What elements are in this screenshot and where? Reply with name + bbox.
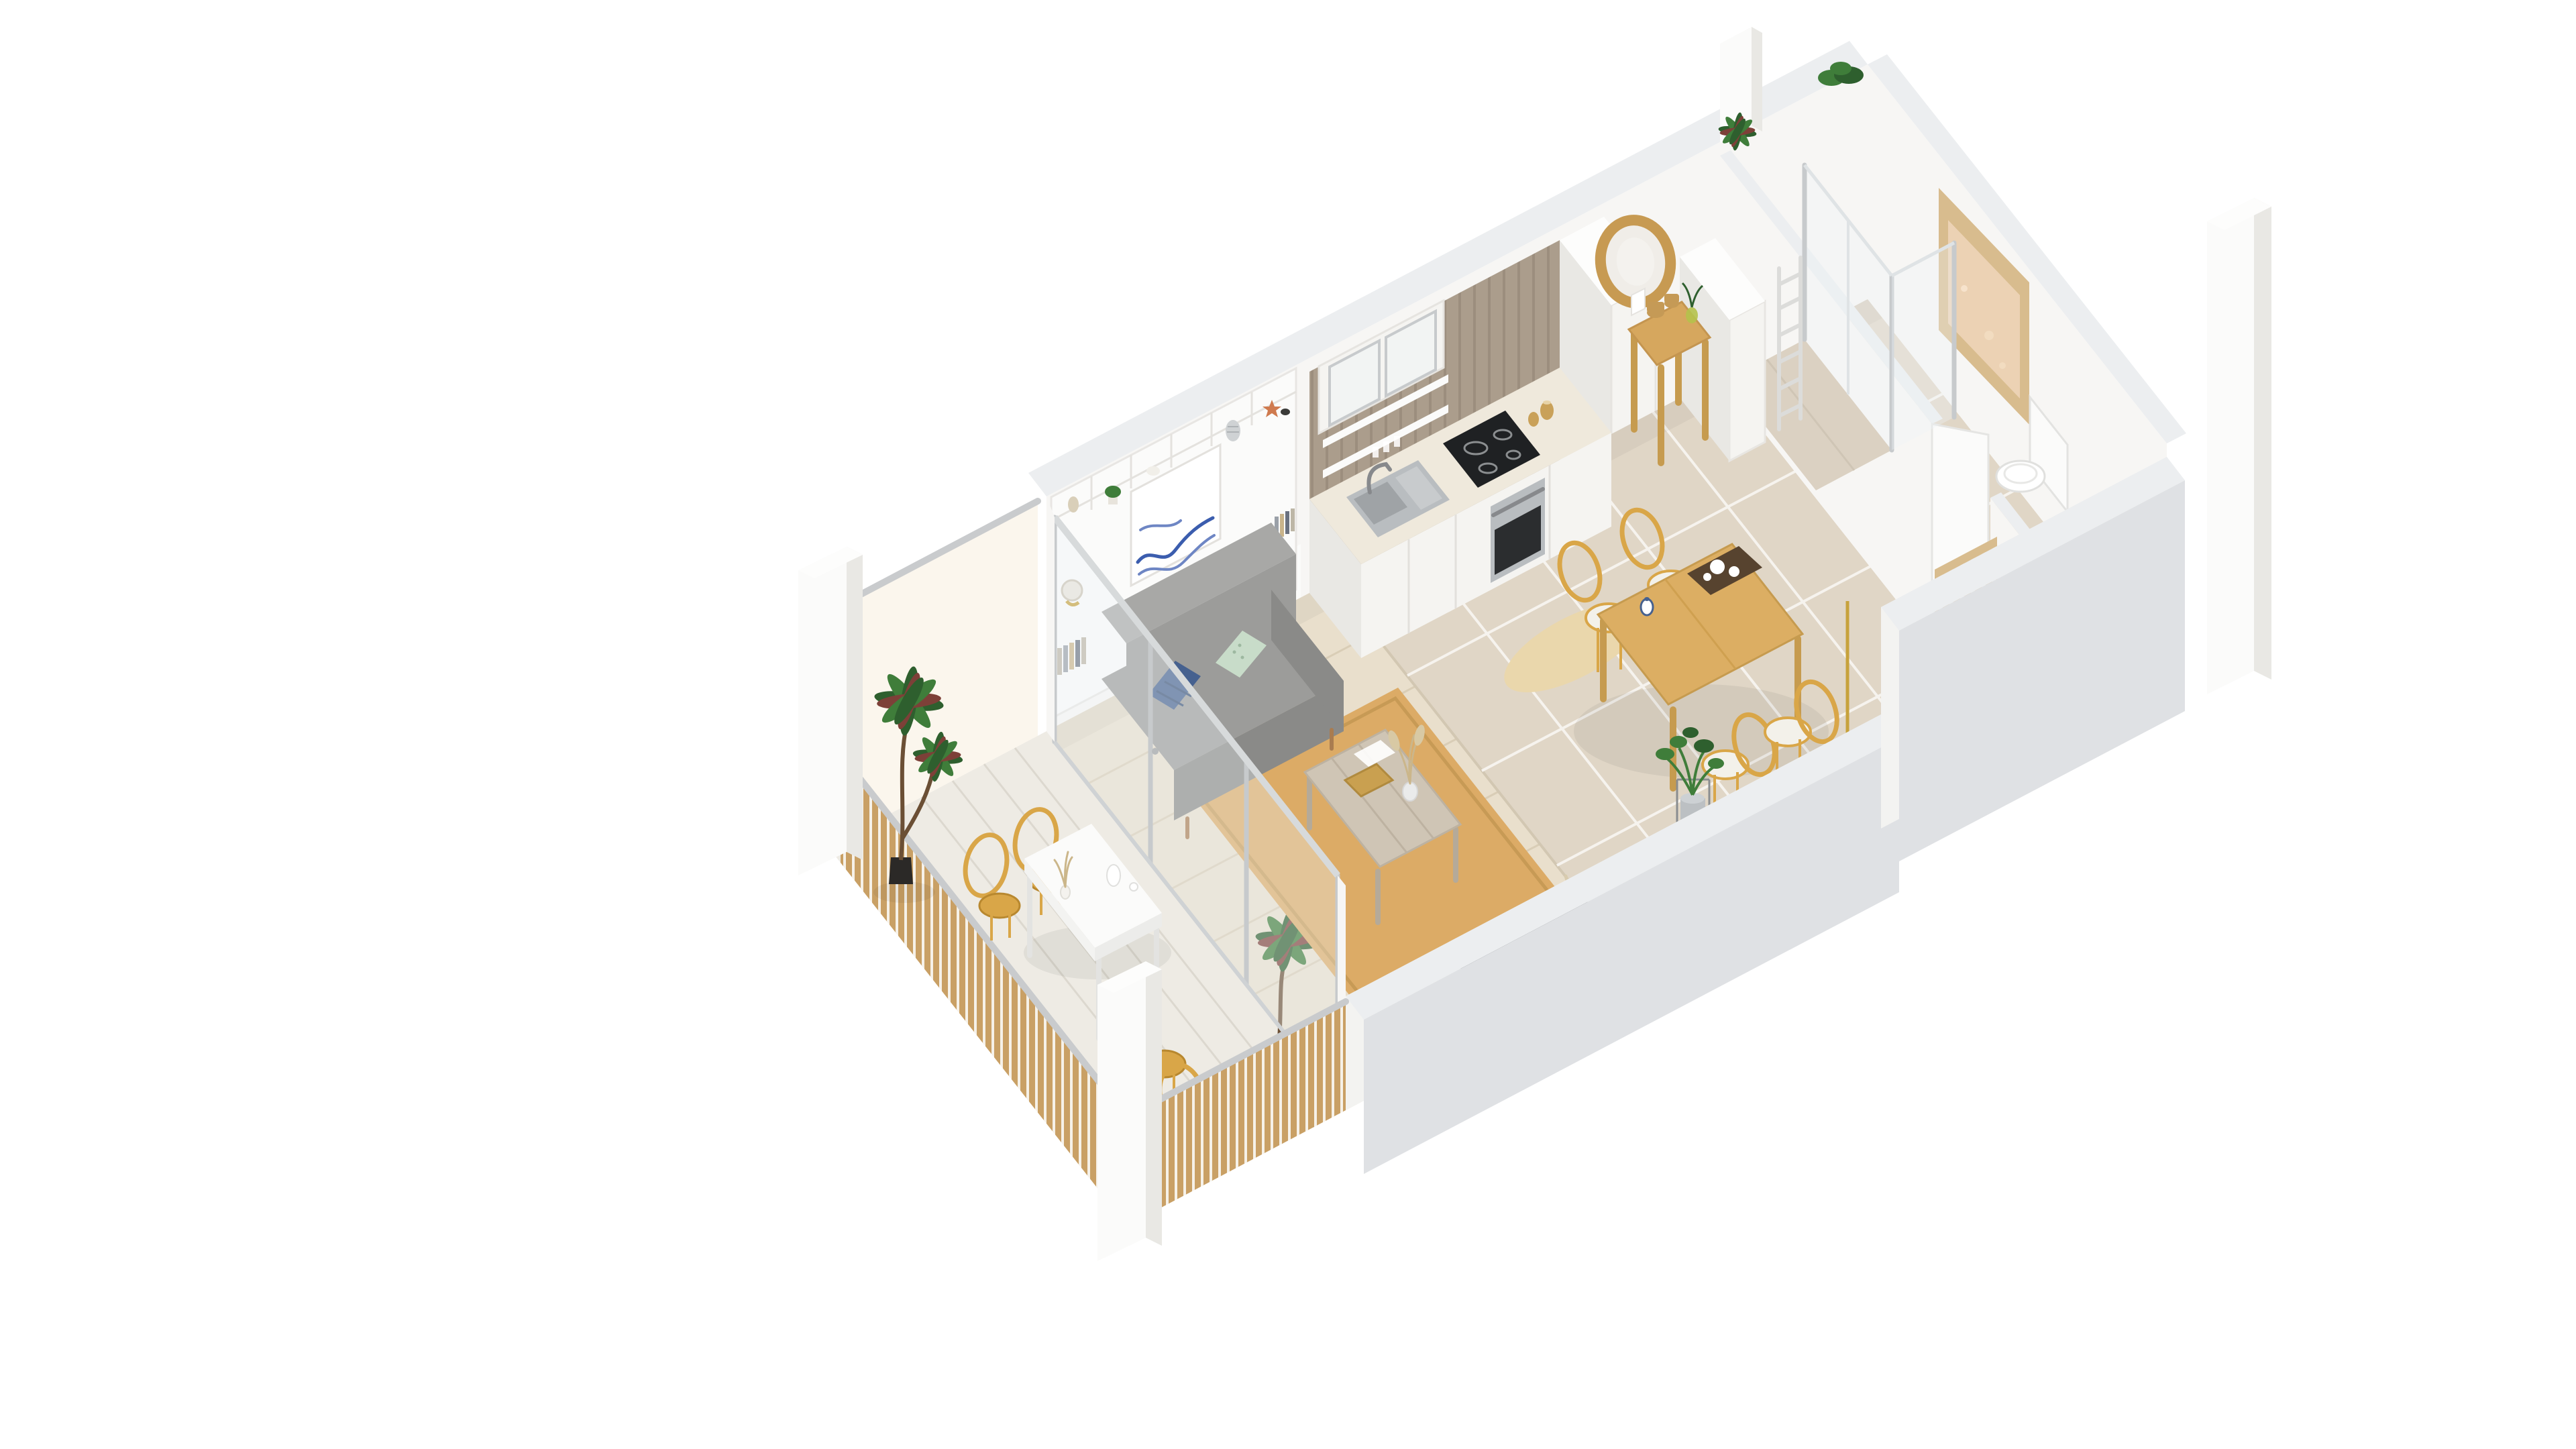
north-pillar-side [1752,27,1762,131]
balcony-south-pillar [1097,961,1162,1261]
glass-speckle [1999,362,2006,369]
floor-plan-stage [0,0,2576,1449]
shower-glass-panel [1892,243,1954,450]
window-handle [1961,285,1968,292]
decor-striped-vase [1226,420,1240,441]
door-handle [1152,748,1159,755]
floor-plan-render [0,0,2576,1449]
balcony-west-pillar [798,547,863,875]
glass-speckle [1984,331,1994,340]
decor-bowl [1146,466,1160,476]
detached-facade-pillar [2207,198,2271,694]
door-wall-return [1046,496,1055,742]
decor-vase [1068,496,1079,513]
